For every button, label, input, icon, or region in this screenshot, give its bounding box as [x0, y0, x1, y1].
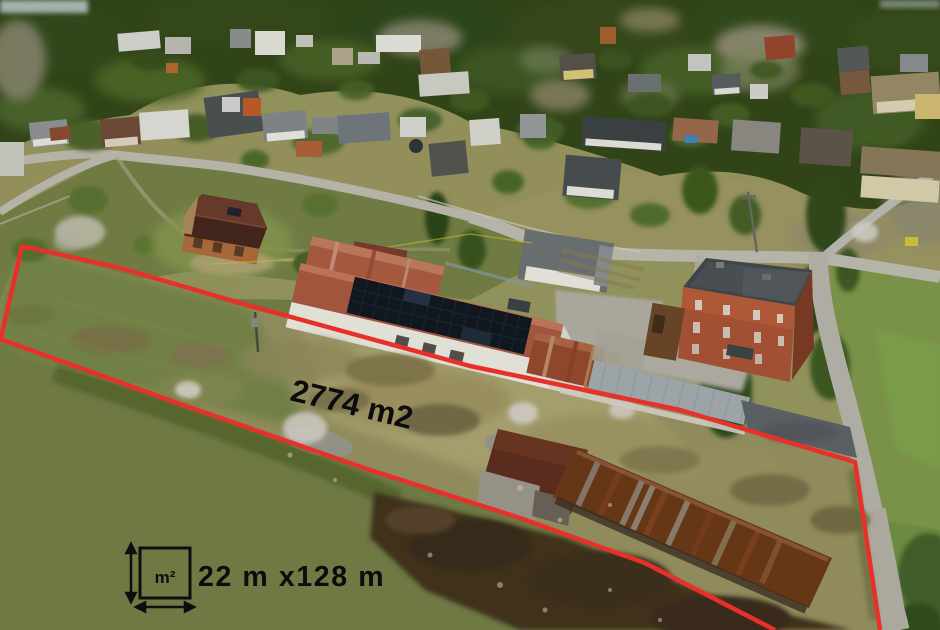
svg-text:22 m x128 m: 22 m x128 m: [198, 561, 385, 593]
svg-text:m²: m²: [155, 568, 176, 587]
